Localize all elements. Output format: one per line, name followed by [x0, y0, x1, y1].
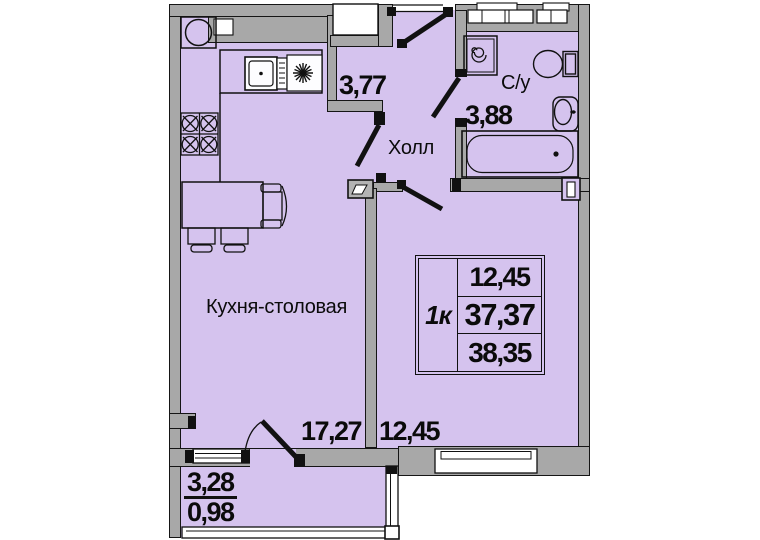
- oven-icon: [245, 57, 287, 90]
- electrical-panel-icon: [348, 180, 373, 198]
- hall-dimension: 3,77: [339, 70, 386, 101]
- washing-machine-icon: [464, 36, 497, 75]
- chair-icon: [188, 228, 248, 252]
- bathroom-sink-icon: [553, 97, 578, 131]
- apartment-info-inner: 1к 12,45 37,37 38,35: [418, 258, 542, 372]
- kitchen-sink-icon: [181, 17, 216, 48]
- room-window-icon: [435, 449, 537, 473]
- living-area-value: 12,45: [458, 259, 541, 296]
- door-swing-arc: [245, 422, 261, 452]
- apartment-info-box: 1к 12,45 37,37 38,35: [415, 255, 545, 375]
- balcony-dimension: 3,28 0,98: [184, 469, 237, 525]
- wall-caps: [185, 7, 467, 467]
- balcony-dimension-reduced: 0,98: [184, 499, 237, 525]
- wall-niche-small: [214, 19, 233, 35]
- armchair-icon: [261, 184, 287, 228]
- kitchen-label: Кухня-столовая: [206, 296, 347, 319]
- room-dimension: 12,45: [379, 416, 439, 447]
- balcony-dimension-full: 3,28: [184, 469, 237, 499]
- bathroom-label: С/у: [501, 72, 530, 95]
- vent-duct-icon: [562, 178, 580, 200]
- total-area-value: 38,35: [458, 333, 541, 371]
- bathtub-icon: [462, 131, 578, 177]
- hall-label: Холл: [388, 137, 434, 160]
- area-value: 37,37: [458, 296, 541, 334]
- area-values: 12,45 37,37 38,35: [457, 259, 541, 371]
- toilet-icon: [534, 51, 579, 78]
- unit-type-label: 1к: [419, 259, 457, 371]
- burner-star-icon: [287, 55, 322, 91]
- kitchen-dimension: 17,27: [301, 416, 361, 447]
- vent-shafts-icon: [468, 3, 569, 23]
- floor-plan: Кухня-столовая Холл С/у 3,77 3,88 17,27 …: [0, 0, 760, 540]
- hob-icon: [181, 113, 218, 155]
- bathroom-dimension: 3,88: [465, 100, 512, 131]
- dining-table-icon: [182, 182, 263, 228]
